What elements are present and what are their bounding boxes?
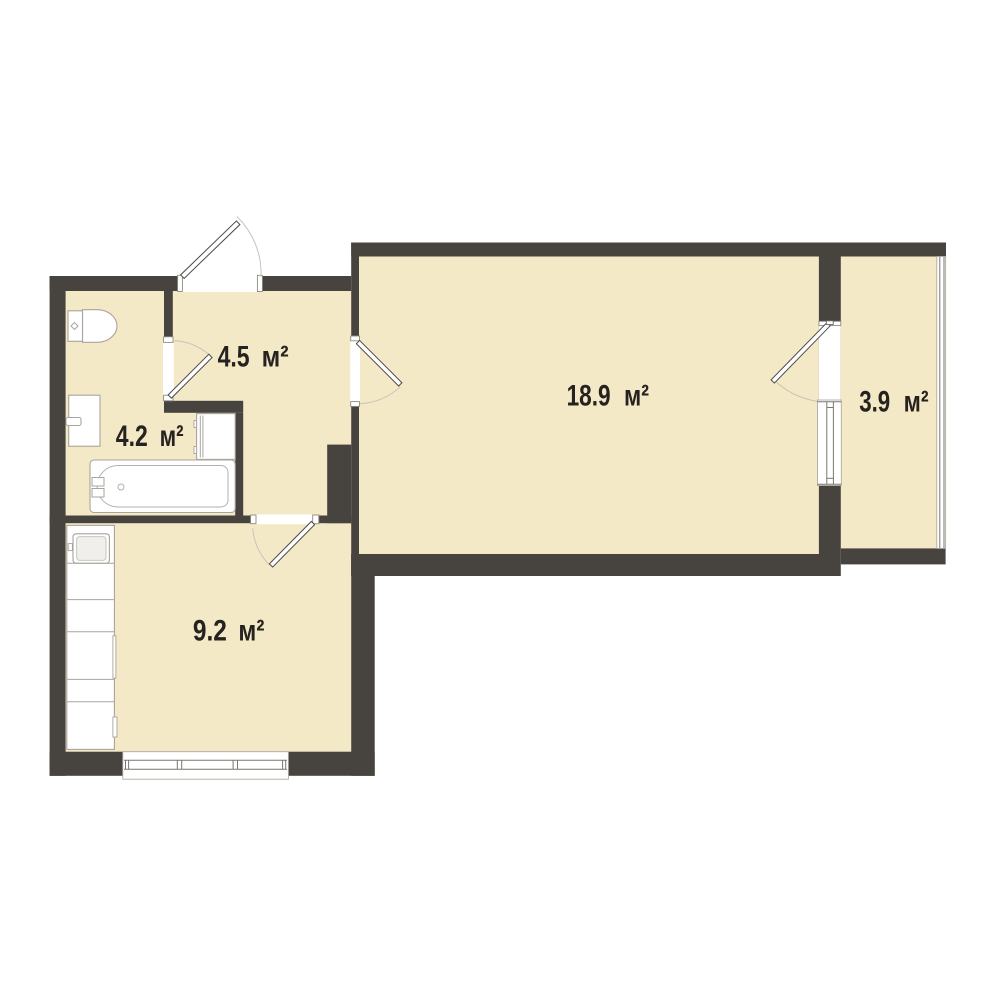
svg-text:4.5: 4.5 [218, 340, 250, 373]
svg-text:4.2: 4.2 [116, 420, 148, 453]
svg-text:м²: м² [238, 615, 264, 648]
svg-text:м²: м² [160, 420, 184, 453]
svg-text:9.2: 9.2 [193, 615, 227, 648]
svg-text:м²: м² [904, 385, 929, 418]
svg-text:м²: м² [262, 340, 289, 373]
svg-text:18.9: 18.9 [567, 380, 611, 413]
svg-text:3.9: 3.9 [859, 385, 890, 418]
svg-text:м²: м² [624, 380, 649, 413]
